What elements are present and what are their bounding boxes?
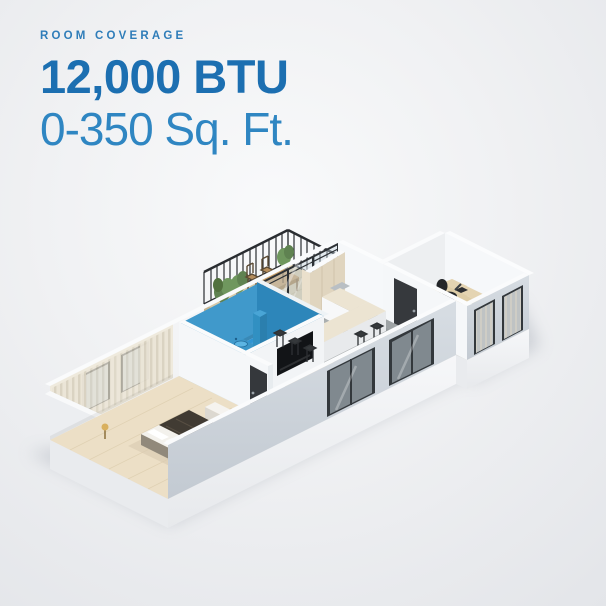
btu-value: 12,000 BTU <box>40 53 293 100</box>
infographic-canvas: ROOM COVERAGE 12,000 BTU 0-350 Sq. Ft. <box>0 0 606 606</box>
coverage-range: 0-350 Sq. Ft. <box>40 106 293 152</box>
door-handle <box>413 310 416 313</box>
room-coverage-label: ROOM COVERAGE <box>40 30 293 42</box>
door-handle <box>252 392 255 395</box>
headline-block: ROOM COVERAGE 12,000 BTU 0-350 Sq. Ft. <box>40 30 293 152</box>
